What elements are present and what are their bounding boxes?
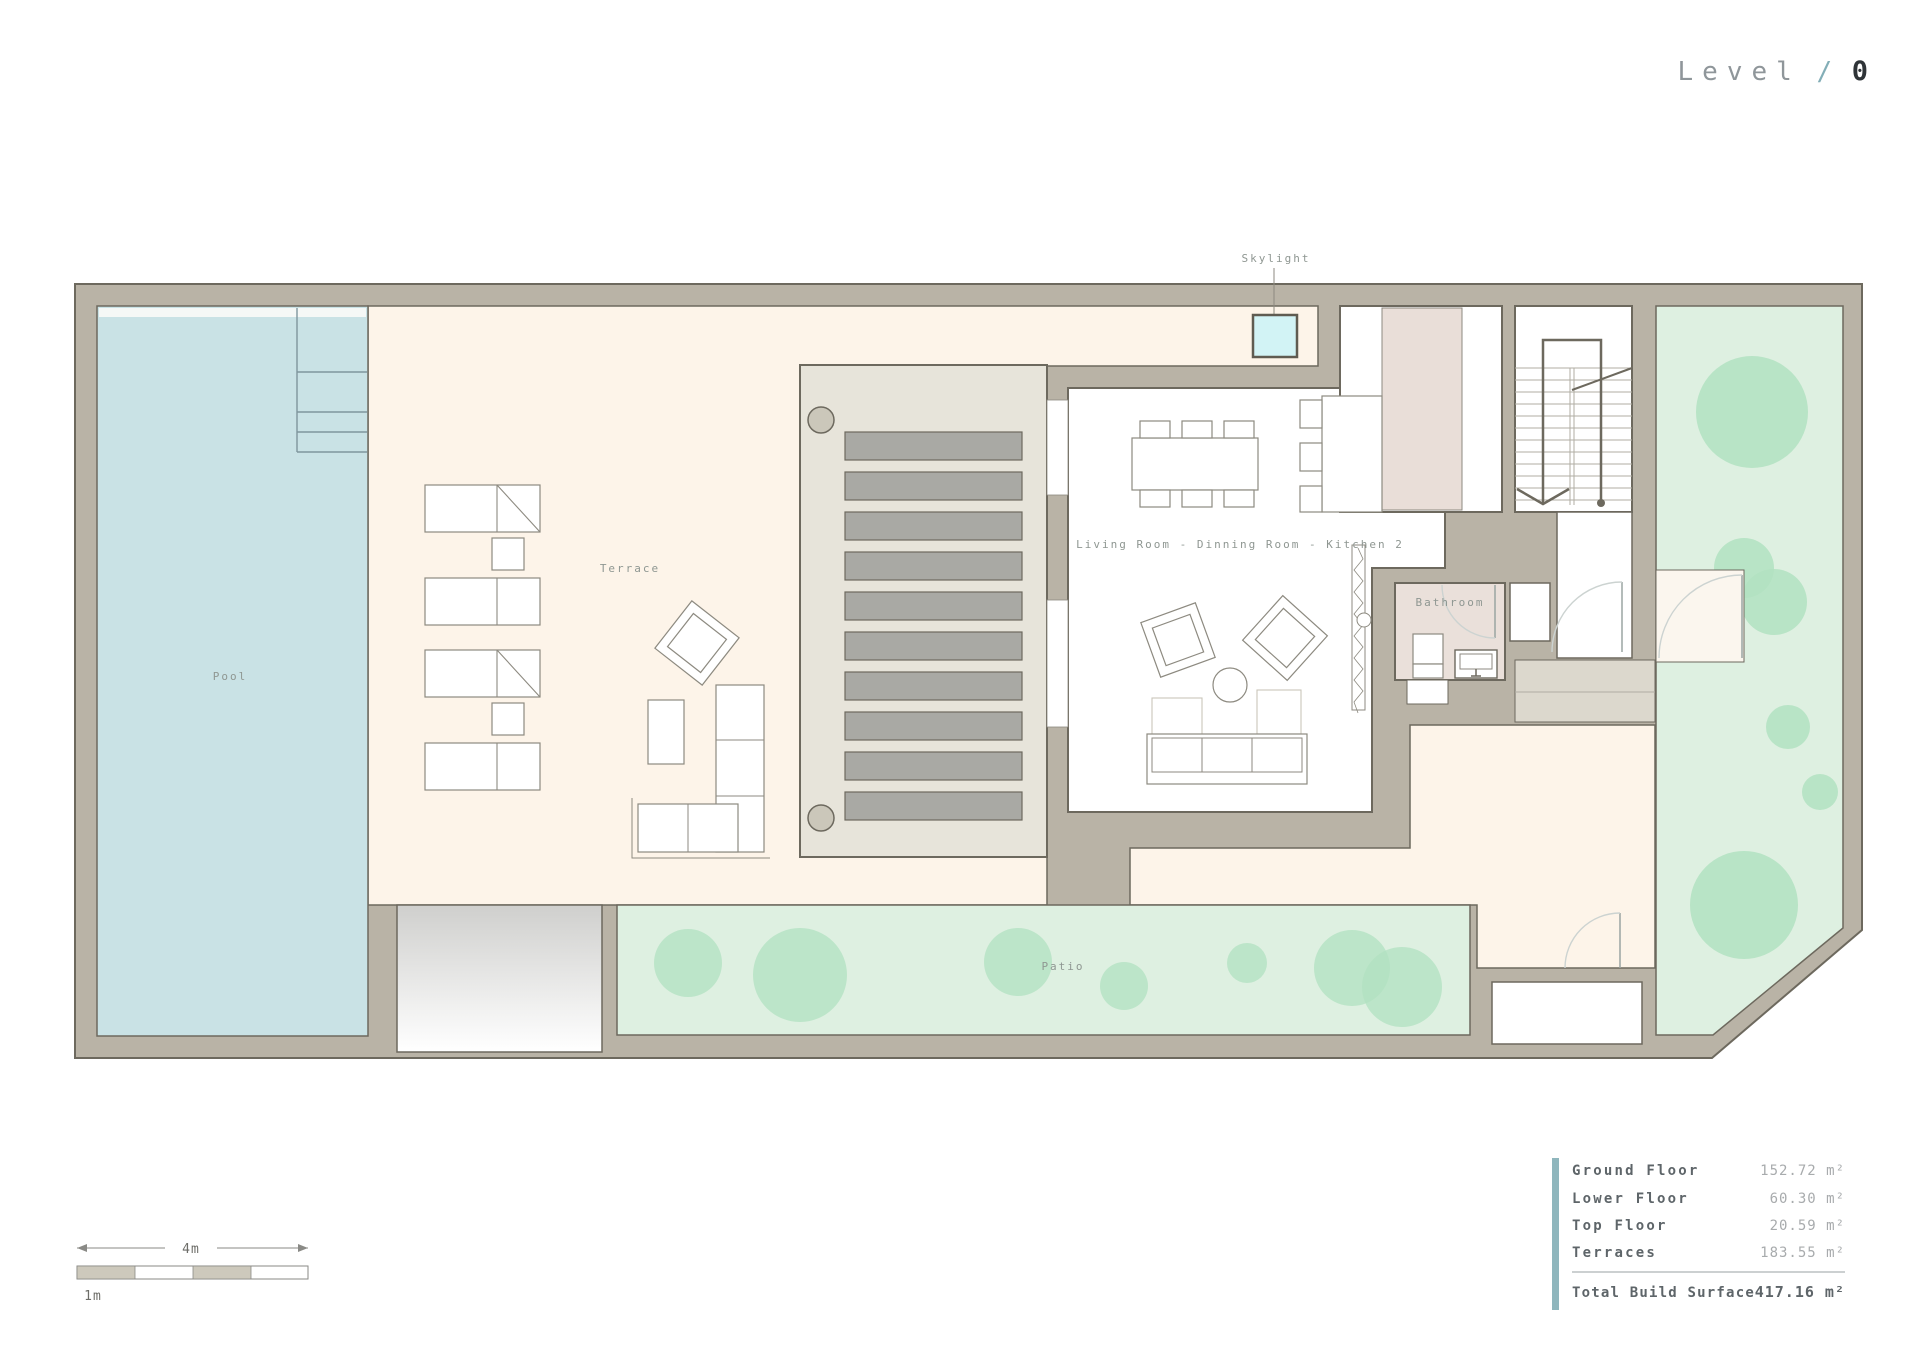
sofa xyxy=(1147,734,1307,784)
floor-plan-page: Pool Patio xyxy=(0,0,1920,1357)
pergola-column xyxy=(808,805,834,831)
title-level-number: 0 xyxy=(1852,56,1868,87)
bathroom-label: Bathroom xyxy=(1416,596,1485,609)
garden-area xyxy=(1656,306,1843,1035)
pergola xyxy=(800,365,1047,857)
table-row-value: 60.30 m² xyxy=(1770,1191,1845,1207)
sofa-side-table xyxy=(648,700,684,764)
scale-bar: 4m 1m xyxy=(77,1237,308,1304)
side-table xyxy=(492,538,524,570)
table-total-value: 417.16 m² xyxy=(1755,1283,1845,1301)
title-level-label: Level xyxy=(1678,57,1801,87)
stool xyxy=(1300,400,1322,428)
table-total-label: Total Build Surface xyxy=(1572,1285,1755,1301)
scale-total-label: 4m xyxy=(182,1242,200,1257)
bathroom-step xyxy=(1407,680,1448,704)
entry-steps xyxy=(1515,660,1655,722)
pergola-column xyxy=(808,407,834,433)
table-row-label: Top Floor xyxy=(1572,1218,1668,1234)
coffee-table xyxy=(1213,668,1247,702)
skylight-label: Skylight xyxy=(1242,252,1311,265)
patio-area: Patio xyxy=(617,905,1470,1035)
living-room-label: Living Room - Dinning Room - Kitchen 2 xyxy=(1076,538,1404,551)
dining-set xyxy=(1132,421,1258,507)
porch-step xyxy=(1492,982,1642,1044)
stool xyxy=(1300,486,1322,512)
scale-unit-label: 1m xyxy=(84,1289,102,1304)
sink xyxy=(1455,650,1497,678)
kitchen-block xyxy=(1382,308,1462,510)
patio-label: Patio xyxy=(1041,960,1084,973)
window xyxy=(1047,400,1068,495)
toilet xyxy=(1413,634,1443,678)
table-row-value: 152.72 m² xyxy=(1760,1163,1845,1179)
pool-label: Pool xyxy=(213,670,248,683)
table-row-label: Lower Floor xyxy=(1572,1191,1689,1207)
table-row-label: Terraces xyxy=(1572,1245,1657,1261)
title-separator: / xyxy=(1816,57,1836,87)
garden-gate xyxy=(1656,570,1744,662)
svg-text:Level / 0: Level / 0 xyxy=(1678,56,1868,87)
area-table-accent-bar xyxy=(1552,1158,1559,1310)
table-row-value: 183.55 m² xyxy=(1760,1245,1845,1261)
page-title: Level / 0 xyxy=(1678,56,1868,87)
bathroom-closet xyxy=(1510,583,1550,641)
terrace-label: Terrace xyxy=(600,562,660,575)
stool xyxy=(1300,443,1322,471)
staircase xyxy=(1515,306,1632,512)
kitchen-counter xyxy=(1322,396,1382,512)
side-table xyxy=(492,703,524,735)
area-table: Ground Floor 152.72 m² Lower Floor 60.30… xyxy=(1552,1158,1845,1310)
window xyxy=(1047,600,1068,727)
table-row-label: Ground Floor xyxy=(1572,1163,1700,1179)
table-row-value: 20.59 m² xyxy=(1770,1218,1845,1234)
ramp xyxy=(397,905,602,1052)
pool-area: Pool xyxy=(97,306,368,1036)
